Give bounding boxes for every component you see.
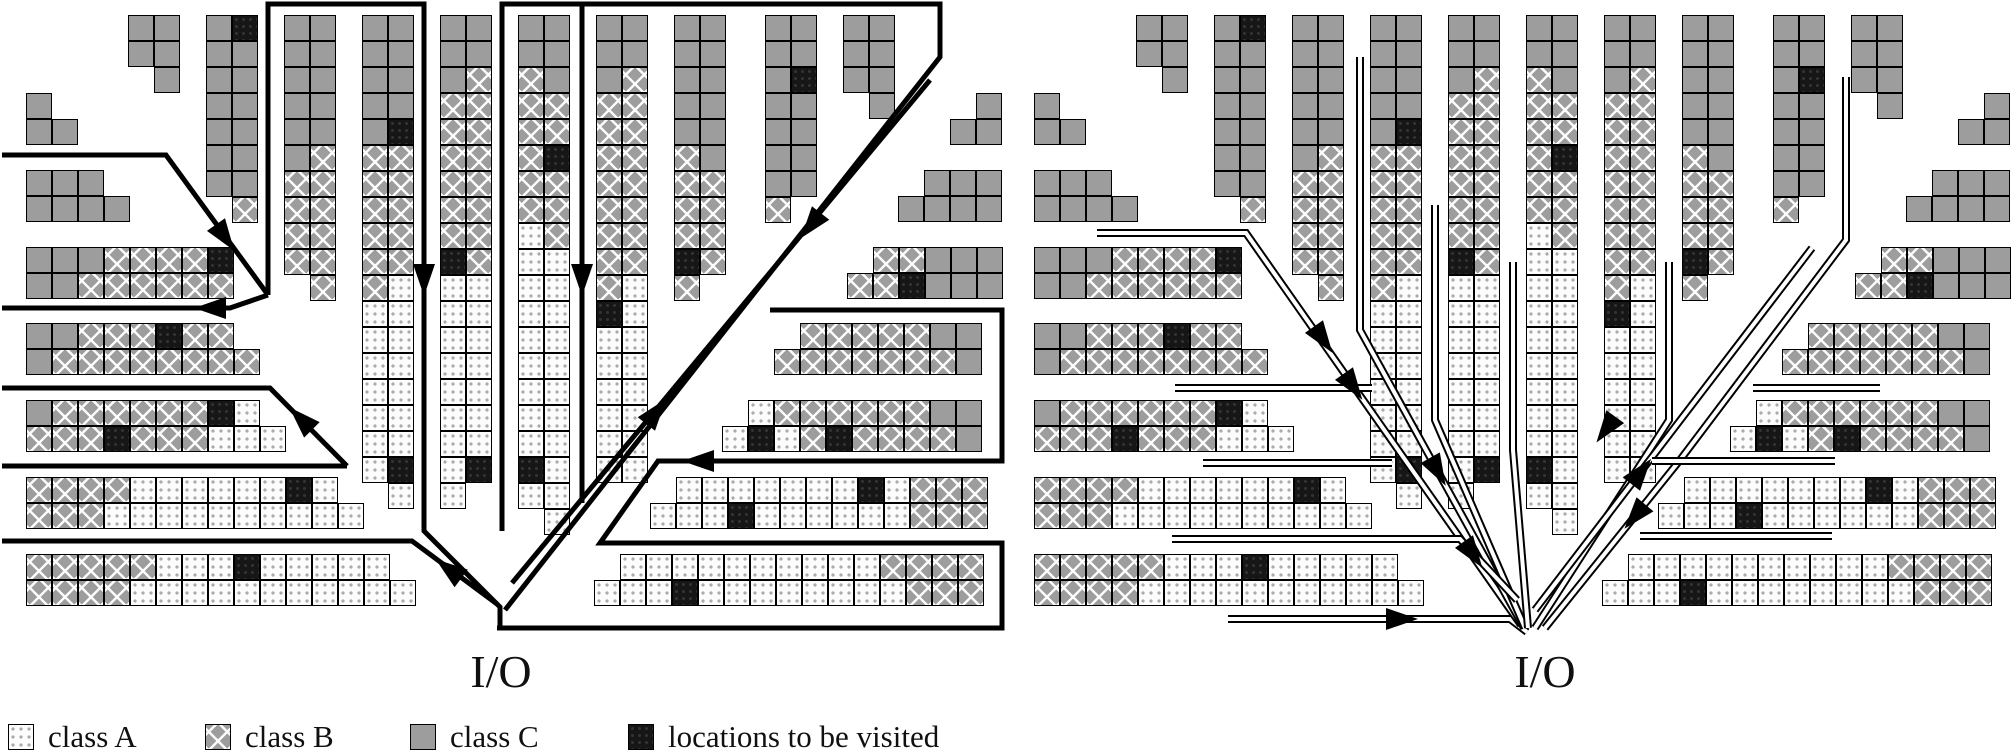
class-b-storage-cell [596,171,622,197]
visit-location-cell [1242,554,1268,580]
visit-location-cell [1756,426,1782,452]
class-b-storage-cell [1604,93,1630,119]
class-b-storage-cell [1912,323,1938,349]
class-c-storage-cell [310,67,336,93]
class-b-storage-cell [440,119,466,145]
class-a-storage-cell [1630,275,1656,301]
class-a-storage-cell [544,353,570,379]
class-c-storage-cell [26,170,52,196]
class-a-storage-cell [260,580,286,606]
class-b-storage-cell [1138,400,1164,426]
class-a-storage-cell [388,353,414,379]
class-b-storage-cell [1060,349,1086,375]
class-c-storage-cell [1240,171,1266,197]
class-a-storage-cell [1526,275,1552,301]
visit-location-cell [858,477,884,503]
class-a-storage-cell [1810,580,1836,606]
class-a-storage-cell [802,554,828,580]
class-b-storage-cell [1396,249,1422,275]
class-c-storage-cell [154,15,180,41]
class-a-storage-cell [518,249,544,275]
class-b-storage-cell [1240,197,1266,223]
class-a-storage-cell [182,503,208,529]
class-b-storage-cell [130,247,156,273]
class-b-storage-cell [1370,197,1396,223]
class-a-storage-cell [1526,353,1552,379]
class-c-storage-cell [1773,171,1799,197]
class-b-storage-cell [1318,171,1344,197]
class-b-storage-cell [1604,197,1630,223]
class-b-storage-cell [1526,67,1552,93]
class-c-storage-cell [1964,426,1990,452]
class-c-storage-cell [466,41,492,67]
class-b-storage-cell [1060,554,1086,580]
visit-location-cell [728,503,754,529]
class-c-storage-cell [1552,15,1578,41]
class-b-storage-cell [1318,223,1344,249]
visit-location-cell [748,426,774,452]
class-c-storage-cell [1292,15,1318,41]
class-a-storage-cell [1448,431,1474,457]
class-a-storage-cell [722,426,748,452]
class-a-storage-cell [1630,327,1656,353]
class-c-storage-cell [1318,119,1344,145]
class-b-storage-cell [962,503,988,529]
class-a-storage-cell [854,554,880,580]
class-a-storage-cell [312,477,338,503]
class-a-storage-cell [1814,503,1840,529]
visit-location-cell [440,249,466,275]
class-c-storage-cell [26,119,52,145]
class-b-storage-cell [1834,349,1860,375]
class-c-storage-cell [1773,93,1799,119]
class-c-storage-cell [1708,93,1734,119]
class-a-storage-cell [260,554,286,580]
class-b-storage-cell [906,580,932,606]
class-c-storage-cell [284,41,310,67]
class-a-storage-cell [802,580,828,606]
class-b-storage-cell [1526,171,1552,197]
class-a-storage-cell [544,301,570,327]
class-a-storage-cell [312,503,338,529]
class-c-storage-cell [596,15,622,41]
class-b-storage-cell [1112,477,1138,503]
class-a-storage-cell [1892,503,1918,529]
class-c-storage-cell [78,196,104,222]
class-c-storage-cell [26,93,52,119]
class-b-storage-cell [1938,426,1964,452]
class-a-storage-cell [622,405,648,431]
class-b-storage-cell [1474,67,1500,93]
class-b-storage-cell [388,171,414,197]
visit-location-cell [1396,457,1422,483]
class-c-storage-cell [26,400,52,426]
class-c-storage-cell [956,426,982,452]
class-a-storage-cell [884,477,910,503]
class-a-storage-cell [388,327,414,353]
route-arrowhead-icon [281,399,319,437]
class-b-storage-cell [388,249,414,275]
class-a-storage-cell [1604,405,1630,431]
class-c-storage-cell [1708,145,1734,171]
class-b-storage-cell [1318,145,1344,171]
class-b-storage-cell [104,554,130,580]
class-b-storage-cell [1370,145,1396,171]
class-c-storage-cell [440,67,466,93]
class-b-storage-cell [1630,67,1656,93]
class-b-storage-cell [1318,249,1344,275]
class-a-storage-cell [1658,503,1684,529]
class-b-storage-cell [284,249,310,275]
class-b-storage-cell [1552,119,1578,145]
class-b-storage-cell [622,249,648,275]
visit-location-cell [674,249,700,275]
class-b-storage-cell [622,67,648,93]
class-a-storage-cell [518,405,544,431]
visit-location-cell [208,400,234,426]
class-b-storage-cell [440,197,466,223]
class-c-storage-cell [1985,273,2011,299]
class-a-storage-cell [1370,353,1396,379]
class-c-storage-cell [1708,41,1734,67]
class-b-storage-cell [1944,503,1970,529]
class-a-storage-cell [1840,477,1866,503]
class-b-storage-cell [1060,426,1086,452]
class-c-storage-cell [700,93,726,119]
class-a-storage-cell [1628,554,1654,580]
class-c-storage-cell [206,93,232,119]
class-c-storage-cell [1162,67,1188,93]
class-a-storage-cell [466,301,492,327]
class-a-storage-cell [1346,503,1372,529]
class-c-storage-cell [1060,196,1086,222]
class-a-storage-cell [1398,580,1424,606]
class-b-storage-cell [596,145,622,171]
class-c-storage-cell [1214,119,1240,145]
class-a-storage-cell [1396,405,1422,431]
class-b-storage-cell [1773,197,1799,223]
class-b-storage-cell [622,119,648,145]
class-b-storage-cell [1966,554,1992,580]
class-b-storage-cell [1164,400,1190,426]
class-b-storage-cell [596,223,622,249]
class-c-storage-cell [206,119,232,145]
class-b-storage-cell [1448,171,1474,197]
class-b-storage-cell [826,349,852,375]
class-c-storage-cell [1773,15,1799,41]
class-c-storage-cell [1984,196,2010,222]
class-a-storage-cell [1892,477,1918,503]
class-c-storage-cell [284,93,310,119]
class-a-storage-cell [1788,503,1814,529]
class-a-storage-cell [1448,405,1474,431]
class-c-storage-cell [674,41,700,67]
visit-location-cell [672,580,698,606]
class-b-storage-cell [1112,400,1138,426]
class-b-storage-cell [1448,93,1474,119]
class-b-storage-cell [1190,400,1216,426]
class-b-storage-cell [1086,323,1112,349]
class-a-storage-cell [1836,554,1862,580]
class-a-storage-cell [1784,554,1810,580]
class-c-storage-cell [700,67,726,93]
class-b-storage-cell [1552,197,1578,223]
class-c-storage-cell [1799,145,1825,171]
class-a-storage-cell [1762,503,1788,529]
class-c-storage-cell [843,67,869,93]
class-c-storage-cell [1552,41,1578,67]
class-c-storage-cell [1799,41,1825,67]
class-a-storage-cell [466,431,492,457]
class-b-storage-cell [104,323,130,349]
class-c-storage-cell [1984,119,2010,145]
class-a-storage-cell [1112,503,1138,529]
class-a-storage-cell [208,503,234,529]
legend-item-class-a: class A [8,719,137,753]
class-b-storage-cell [1808,400,1834,426]
class-c-storage-cell [976,170,1002,196]
class-a-storage-cell [362,431,388,457]
class-c-storage-cell [78,170,104,196]
class-a-storage-cell [1680,554,1706,580]
class-b-storage-cell [544,197,570,223]
class-c-storage-cell [1136,41,1162,67]
class-a-storage-cell [622,431,648,457]
class-a-storage-cell [676,477,702,503]
class-b-storage-cell [284,223,310,249]
visit-location-cell [826,426,852,452]
class-c-storage-cell [925,273,951,299]
class-b-storage-cell [622,171,648,197]
class-b-storage-cell [1808,323,1834,349]
class-a-storage-cell [1604,353,1630,379]
class-a-storage-cell [832,503,858,529]
class-b-storage-cell [1808,349,1834,375]
class-c-storage-cell [26,273,52,299]
class-c-storage-cell [791,145,817,171]
class-c-storage-cell [1964,349,1990,375]
warehouse-routing-figure: I/O I/O class A class B class C location… [0,0,2011,753]
class-c-storage-cell [284,15,310,41]
class-b-storage-cell [1216,349,1242,375]
class-b-storage-cell [208,273,234,299]
class-a-storage-cell [1552,327,1578,353]
class-c-storage-cell [674,119,700,145]
class-b-storage-cell [104,400,130,426]
class-b-storage-cell [310,145,336,171]
class-b-storage-cell [1552,171,1578,197]
visit-location-cell [1216,247,1242,273]
class-b-storage-cell [1216,323,1242,349]
route-arrowhead-icon [1616,497,1653,536]
visit-location-cell [1448,249,1474,275]
class-c-storage-cell [1682,119,1708,145]
class-c-storage-cell [1214,15,1240,41]
class-a-storage-cell [1474,353,1500,379]
class-b-storage-cell [1682,171,1708,197]
class-a-storage-cell [1730,426,1756,452]
class-b-storage-cell [208,349,234,375]
class-a-storage-cell [1190,503,1216,529]
class-a-storage-cell [1630,301,1656,327]
class-c-storage-cell [1034,119,1060,145]
class-b-storage-cell [104,580,130,606]
class-a-storage-cell [388,431,414,457]
class-c-storage-cell [362,67,388,93]
class-a-storage-cell [1396,431,1422,457]
class-a-storage-cell [728,477,754,503]
class-b-storage-cell [130,554,156,580]
class-b-storage-cell [518,171,544,197]
class-a-storage-cell [1268,503,1294,529]
class-a-storage-cell [596,353,622,379]
class-c-storage-cell [52,273,78,299]
class-a-storage-cell [440,275,466,301]
class-a-storage-cell [440,457,466,483]
class-a-storage-cell [1346,554,1372,580]
class-c-storage-cell [1959,273,1985,299]
class-b-storage-cell [826,400,852,426]
class-a-storage-cell [622,301,648,327]
class-b-storage-cell [78,554,104,580]
class-c-storage-cell [1060,247,1086,273]
class-a-storage-cell [130,580,156,606]
class-c-storage-cell [1526,41,1552,67]
class-a-storage-cell [806,503,832,529]
visit-location-cell [1216,400,1242,426]
visit-location-cell [1680,580,1706,606]
class-a-storage-cell [1138,503,1164,529]
visit-location-cell [1526,457,1552,483]
class-a-storage-cell [518,353,544,379]
class-b-storage-cell [1474,249,1500,275]
class-a-storage-cell [620,580,646,606]
class-b-storage-cell [622,145,648,171]
class-c-swatch-icon [410,724,436,750]
class-b-storage-cell [700,197,726,223]
class-c-storage-cell [950,170,976,196]
class-c-storage-cell [310,119,336,145]
class-b-storage-cell [466,223,492,249]
class-a-storage-cell [1602,580,1628,606]
class-a-storage-cell [362,457,388,483]
class-a-storage-cell [234,477,260,503]
class-b-storage-cell [1604,249,1630,275]
class-b-storage-cell [388,223,414,249]
class-c-storage-cell [1474,41,1500,67]
visit-location-cell [1294,477,1320,503]
class-c-storage-cell [898,196,924,222]
legend-label: class B [245,719,334,753]
class-b-storage-cell [1630,249,1656,275]
class-a-storage-cell [650,503,676,529]
route-path [1228,619,1527,632]
class-b-storage-cell [1834,323,1860,349]
class-b-storage-cell [1940,580,1966,606]
class-c-storage-cell [310,41,336,67]
class-a-storage-cell [1396,353,1422,379]
class-a-storage-cell [622,327,648,353]
class-c-storage-cell [440,15,466,41]
class-b-storage-cell [544,171,570,197]
class-b-storage-cell [878,400,904,426]
class-b-storage-cell [1034,503,1060,529]
class-a-storage-cell [1630,457,1656,483]
class-b-storage-cell [1112,273,1138,299]
class-b-storage-cell [518,93,544,119]
class-c-storage-cell [1034,400,1060,426]
class-c-storage-cell [1240,67,1266,93]
class-b-storage-cell [826,323,852,349]
class-a-storage-cell [1474,301,1500,327]
class-b-storage-cell [596,249,622,275]
class-c-storage-cell [791,41,817,67]
class-a-storage-cell [362,301,388,327]
class-a-storage-cell [208,426,234,452]
class-a-storage-cell [518,223,544,249]
visit-location-cell [1736,503,1762,529]
class-b-storage-cell [936,477,962,503]
class-b-storage-cell [1370,223,1396,249]
class-b-storage-cell [466,119,492,145]
class-b-storage-cell [878,426,904,452]
class-c-storage-cell [206,171,232,197]
class-b-storage-cell [596,119,622,145]
visit-location-cell [286,477,312,503]
class-c-storage-cell [765,171,791,197]
class-a-storage-cell [1552,249,1578,275]
class-b-storage-cell [1138,323,1164,349]
class-b-storage-cell [1682,197,1708,223]
class-c-storage-cell [976,196,1002,222]
class-c-storage-cell [206,67,232,93]
class-a-storage-cell [1474,405,1500,431]
class-c-storage-cell [1682,41,1708,67]
class-a-storage-cell [440,353,466,379]
legend-label: class C [450,719,539,753]
class-a-storage-cell [1684,477,1710,503]
class-c-storage-cell [622,41,648,67]
class-a-storage-cell [466,379,492,405]
class-c-storage-cell [466,15,492,41]
class-b-storage-cell [52,400,78,426]
class-b-swatch-icon [205,724,231,750]
class-b-storage-cell [700,223,726,249]
class-c-storage-cell [206,15,232,41]
class-a-storage-cell [364,554,390,580]
class-b-storage-cell [156,426,182,452]
class-a-storage-cell [774,426,800,452]
class-c-storage-cell [1086,170,1112,196]
class-b-storage-cell [310,249,336,275]
class-b-storage-cell [1112,554,1138,580]
class-a-storage-cell [1474,275,1500,301]
class-c-storage-cell [1526,15,1552,41]
class-a-storage-cell [1190,477,1216,503]
class-b-storage-cell [1808,426,1834,452]
class-a-storage-cell [362,379,388,405]
class-b-storage-cell [1034,554,1060,580]
route-arrowhead-icon [1335,367,1371,406]
class-c-storage-cell [843,41,869,67]
class-b-storage-cell [1474,93,1500,119]
class-b-storage-cell [518,67,544,93]
class-a-storage-cell [130,477,156,503]
class-c-storage-cell [154,67,180,93]
class-b-storage-cell [1604,223,1630,249]
route-arrowhead-icon [571,264,593,296]
class-a-storage-cell [750,554,776,580]
